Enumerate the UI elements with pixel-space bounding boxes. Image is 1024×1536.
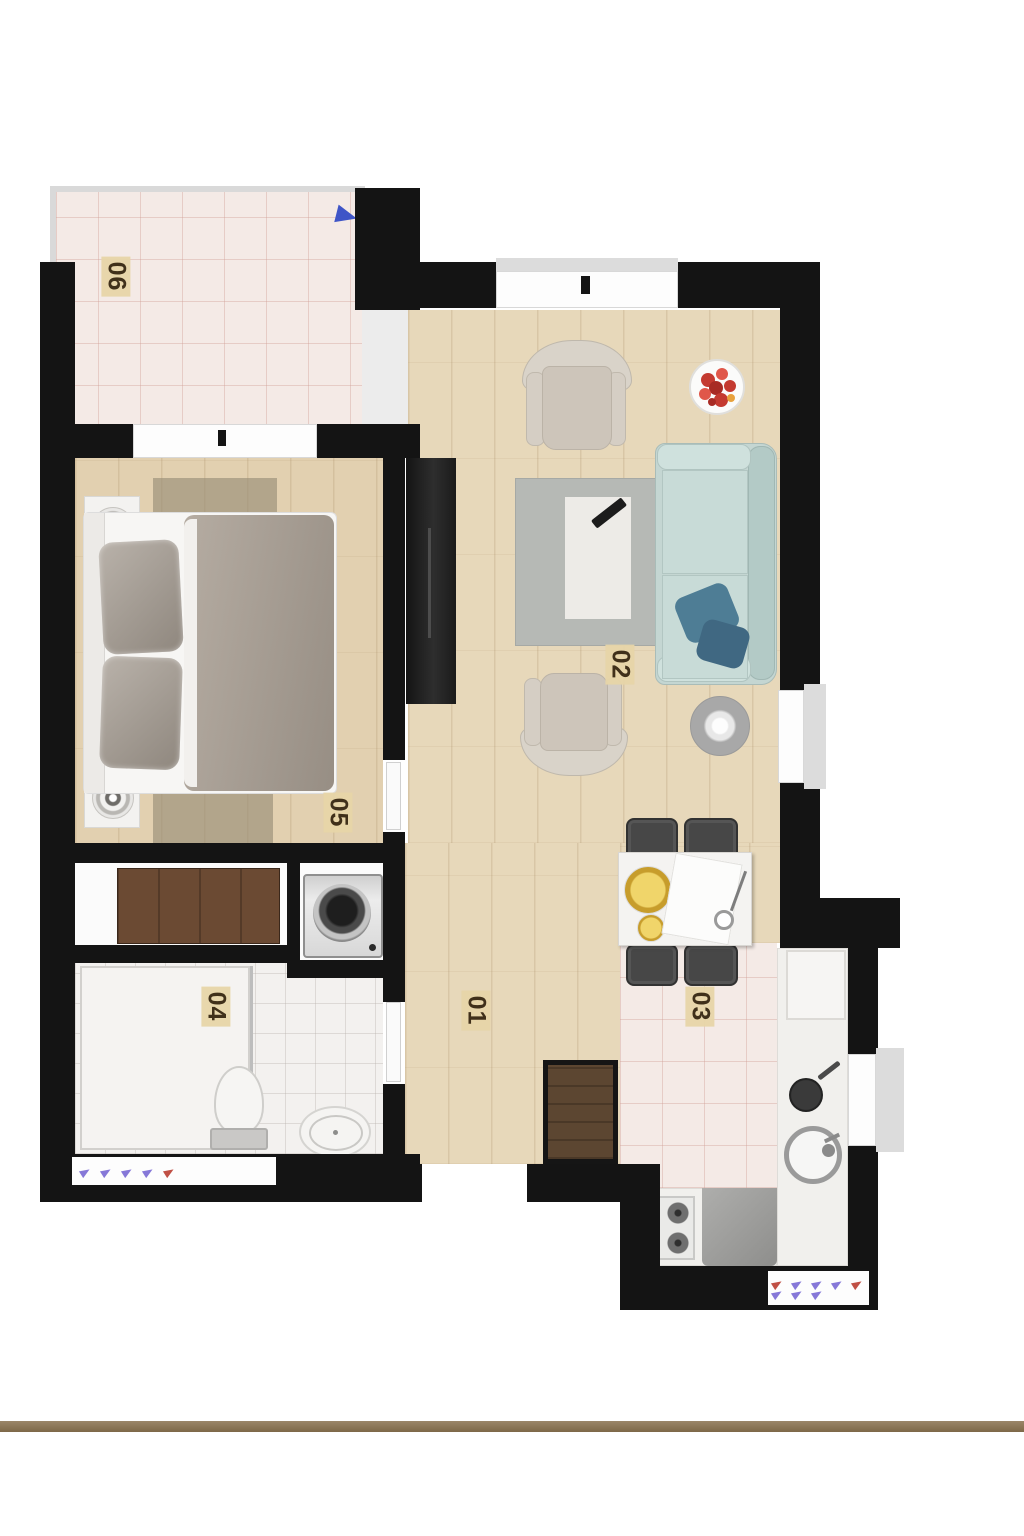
- room-label-05: 05: [314, 788, 362, 836]
- wall: [780, 898, 900, 948]
- sofa: [655, 443, 775, 683]
- room-label-02: 02: [596, 640, 644, 688]
- apartment-floor-plan: 01 02 03 04 05 06: [0, 0, 1024, 1536]
- wall: [848, 948, 878, 1054]
- plate-small-icon: [637, 914, 665, 942]
- wall: [315, 424, 420, 458]
- flower-bowl-icon: [688, 358, 746, 416]
- wall: [420, 262, 498, 308]
- wall: [287, 960, 390, 978]
- dining-chair: [684, 944, 738, 986]
- living-side-window: [778, 690, 804, 783]
- living-window-sill: [496, 258, 678, 271]
- kitchen-radiator: [768, 1271, 869, 1305]
- radiator-arrow-icon: [100, 1164, 116, 1178]
- entry-cabinet: [543, 1060, 618, 1164]
- kitchen-window: [848, 1054, 876, 1146]
- kitchen-appliance: [702, 1188, 777, 1266]
- wall: [40, 424, 135, 458]
- wall: [383, 455, 405, 760]
- duvet: [184, 515, 334, 791]
- bathroom-door: [386, 1002, 401, 1082]
- wall: [75, 945, 290, 963]
- radiator-arrow-icon: [831, 1276, 847, 1290]
- cabinet-handle-icon: [428, 528, 431, 638]
- radiator-arrow-icon: [121, 1164, 137, 1178]
- kitchen-cabinet: [786, 950, 846, 1020]
- armchair-seat: [542, 366, 612, 450]
- wall: [75, 843, 390, 863]
- radiator-arrow-icon: [79, 1164, 95, 1178]
- room-number: 03: [686, 986, 715, 1026]
- sheet-fold: [184, 519, 197, 787]
- bedroom-door: [386, 762, 401, 830]
- wall: [383, 978, 405, 1002]
- wall: [848, 1146, 878, 1272]
- wall: [620, 1164, 660, 1268]
- room-number: 01: [462, 990, 491, 1030]
- wall: [676, 262, 788, 308]
- baseline-divider: [0, 1421, 1024, 1432]
- plate-large-icon: [624, 866, 672, 914]
- wall: [383, 1084, 405, 1168]
- window-mullion: [581, 276, 590, 294]
- living-side-window-sill: [804, 684, 826, 789]
- balcony-floor: [56, 192, 362, 428]
- room-number: 06: [102, 256, 131, 296]
- wall: [780, 262, 820, 690]
- room-label-06: 06: [92, 252, 140, 300]
- wall: [780, 783, 820, 905]
- bathroom-sink-icon: [299, 1106, 371, 1158]
- room-label-03: 03: [676, 982, 724, 1030]
- washer-drum-icon: [313, 884, 371, 942]
- flower-bowl: [688, 358, 746, 416]
- napkin: [661, 853, 742, 946]
- radiator-arrow-icon: [142, 1164, 158, 1178]
- radiator-arrow-icon: [163, 1164, 179, 1178]
- wall: [355, 188, 420, 310]
- wardrobe: [117, 868, 280, 944]
- washer-knob-icon: [369, 944, 376, 951]
- double-bed: [83, 512, 337, 794]
- bathroom-radiator: [72, 1157, 276, 1185]
- drain-icon: [333, 1130, 338, 1135]
- room-number: 04: [202, 986, 231, 1026]
- pillow: [98, 539, 184, 655]
- sofa-cushion: [662, 470, 748, 574]
- kitchen-window-sill: [876, 1048, 904, 1152]
- toilet-bowl-icon: [214, 1066, 264, 1134]
- dining-chair: [626, 944, 678, 986]
- room-number: 02: [606, 644, 635, 684]
- pillow: [99, 656, 183, 771]
- sofa-armrest: [657, 444, 751, 470]
- lightwell: [362, 310, 408, 426]
- radiator-arrow-icon: [851, 1276, 867, 1290]
- tv-cabinet: [406, 458, 456, 704]
- room-label-04: 04: [192, 982, 240, 1030]
- pan-icon: [789, 1078, 823, 1112]
- wall: [40, 262, 75, 1202]
- side-table-icon: [690, 696, 750, 756]
- sofa-back: [748, 446, 775, 680]
- toilet-tank-icon: [210, 1128, 268, 1150]
- faucet-icon: [822, 1144, 835, 1157]
- washing-machine: [303, 874, 383, 958]
- room-number: 05: [324, 792, 353, 832]
- armchair-top: [522, 340, 630, 452]
- window-mullion: [218, 430, 226, 446]
- room-label-01: 01: [452, 986, 500, 1034]
- wall: [527, 1164, 622, 1202]
- napkin-ring-icon: [714, 910, 734, 930]
